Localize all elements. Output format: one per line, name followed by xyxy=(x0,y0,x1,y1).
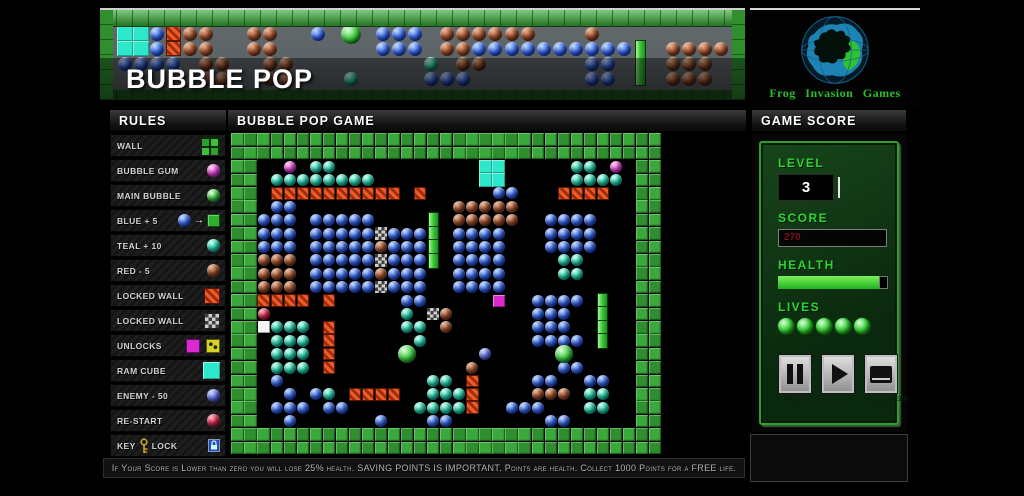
wall-tile xyxy=(649,348,661,361)
wall-tile xyxy=(349,442,361,455)
wall-tile xyxy=(375,133,387,146)
wall-tile xyxy=(649,133,661,146)
wall-tile xyxy=(649,388,661,401)
wall-tile xyxy=(257,442,269,455)
wall-tile xyxy=(362,133,374,146)
blue-bubble xyxy=(310,228,322,240)
blue-bubble xyxy=(414,295,426,307)
blue-bubble xyxy=(414,281,426,293)
red-bubble xyxy=(456,27,470,41)
locked-wall-tile xyxy=(257,294,269,307)
blue-bubble xyxy=(323,254,335,266)
red-bubble xyxy=(183,27,197,41)
blue-bubble xyxy=(479,268,491,280)
game-board[interactable] xyxy=(228,132,746,456)
teal-bubble xyxy=(349,174,361,186)
wall-tile xyxy=(518,428,530,441)
life-orb xyxy=(797,318,813,334)
blue-bubble xyxy=(414,228,426,240)
wall-tile xyxy=(323,133,335,146)
blue-bubble xyxy=(349,214,361,226)
blue-bubble xyxy=(414,268,426,280)
wall-tile xyxy=(427,133,439,146)
blue-bubble xyxy=(532,295,544,307)
wall-tile xyxy=(231,401,243,414)
locked-wall-tile xyxy=(388,187,400,200)
red-bubble xyxy=(183,42,197,56)
blue-bubble xyxy=(310,388,322,400)
blue-bubble xyxy=(532,335,544,347)
score-header: GAME SCORE xyxy=(752,110,906,132)
red-bubble xyxy=(247,27,261,41)
blue-bubble xyxy=(493,187,505,199)
blue-bubble xyxy=(362,268,374,280)
wall-tile xyxy=(649,401,661,414)
wall-tile xyxy=(244,375,256,388)
blue-bubble xyxy=(150,27,164,41)
blue-bubble xyxy=(532,375,544,387)
game-board-header: BUBBLE POP GAME xyxy=(228,110,746,132)
locked-wall-tile xyxy=(558,187,570,200)
wall-tile xyxy=(375,147,387,160)
wall-tile xyxy=(466,442,478,455)
blue-bubble xyxy=(150,42,164,56)
health-bar xyxy=(778,276,888,289)
rule-label: BLUE + 5 xyxy=(117,216,175,226)
locked-wall-tile xyxy=(584,187,596,200)
wall-tile xyxy=(231,147,243,160)
wall-tile xyxy=(649,361,661,374)
blue-bubble xyxy=(585,42,599,56)
blue-bubble xyxy=(271,228,283,240)
level-input[interactable]: 3 xyxy=(778,174,834,201)
red-bubble xyxy=(284,281,296,293)
wall-tile xyxy=(649,334,661,347)
wall-tile xyxy=(231,174,243,187)
wall-tile xyxy=(231,254,243,267)
locked-wall-tile xyxy=(323,294,335,307)
teal-bubble xyxy=(453,402,465,414)
red-bubble xyxy=(682,42,696,56)
wall-tile xyxy=(610,442,622,455)
red-bubble xyxy=(375,268,387,280)
red-bubble xyxy=(258,268,270,280)
red-bubble xyxy=(456,42,470,56)
wall-tile xyxy=(492,428,504,441)
wall-tile xyxy=(231,321,243,334)
wall-tile xyxy=(244,200,256,213)
teal-bubble xyxy=(297,348,309,360)
teal-bubble xyxy=(584,388,596,400)
enemy-bubble xyxy=(479,348,491,360)
red-bubble xyxy=(199,42,213,56)
wall-tile xyxy=(231,187,243,200)
button-face xyxy=(864,354,898,394)
wall-tile xyxy=(649,321,661,334)
wall-tile xyxy=(649,308,661,321)
wall-tile xyxy=(401,428,413,441)
wall-tile xyxy=(231,334,243,347)
blue-bubble xyxy=(545,214,557,226)
blue-bubble xyxy=(376,42,390,56)
wall-tile xyxy=(636,254,648,267)
wall-tile xyxy=(466,147,478,160)
blue-bubble xyxy=(545,375,557,387)
wall-tile xyxy=(584,428,596,441)
blue-bubble xyxy=(571,335,583,347)
blue-bubble xyxy=(537,42,551,56)
red-bubble xyxy=(472,27,486,41)
wall-tile xyxy=(597,147,609,160)
wall-tile xyxy=(479,442,491,455)
teal-bubble xyxy=(584,402,596,414)
wall-tile xyxy=(532,428,544,441)
red-bubble xyxy=(488,27,502,41)
locked-wall-tile xyxy=(166,26,181,40)
teal-bubble xyxy=(571,161,583,173)
teal-bubble xyxy=(427,375,439,387)
blue-bubble xyxy=(336,281,348,293)
red-bubble xyxy=(199,27,213,41)
blue-bubble xyxy=(310,268,322,280)
blue-bubble xyxy=(545,228,557,240)
ram-cube-tile xyxy=(133,41,149,56)
rule-label: LOCK xyxy=(152,441,205,451)
wall-tile xyxy=(231,267,243,280)
wall-tile xyxy=(623,442,635,455)
locked-wall-tile xyxy=(323,321,335,334)
locked-wall-tile xyxy=(362,388,374,401)
blue-bubble xyxy=(336,402,348,414)
blue-bubble xyxy=(349,281,361,293)
fullscreen-button[interactable]: FULLSCREEN xyxy=(864,354,898,403)
wall-tile xyxy=(414,147,426,160)
green-bar-segment xyxy=(429,213,438,227)
blue-bubble xyxy=(571,241,583,253)
red-bubble xyxy=(271,268,283,280)
wall-tile xyxy=(636,361,648,374)
rule-label: KEY xyxy=(117,441,136,451)
rule-item-key: KEYLOCK xyxy=(110,434,226,457)
button-label: PLAY xyxy=(821,397,855,403)
wall-tile xyxy=(649,267,661,280)
blue-bubble xyxy=(532,321,544,333)
wall-tile xyxy=(597,133,609,146)
steel-wall-tile xyxy=(427,308,439,321)
teal-bubble xyxy=(297,335,309,347)
orb-crimson-icon xyxy=(207,414,220,427)
blue-bubble xyxy=(414,254,426,266)
wall-tile xyxy=(284,442,296,455)
wall-tile xyxy=(440,133,452,146)
blue-bubble xyxy=(558,214,570,226)
wall-tile xyxy=(388,147,400,160)
wall-tile xyxy=(636,281,648,294)
blue-plus-icon xyxy=(207,214,220,227)
blue-bubble xyxy=(545,415,557,427)
blue-bubble xyxy=(284,402,296,414)
locked-wall-tile xyxy=(297,294,309,307)
wall-icon xyxy=(202,137,220,155)
teal-bubble xyxy=(440,375,452,387)
game-area: BUBBLE POP GAME xyxy=(228,110,746,456)
teal-bubble xyxy=(271,321,283,333)
wall-tile xyxy=(231,160,243,173)
teal-bubble xyxy=(310,161,322,173)
red-bubble xyxy=(505,27,519,41)
wall-tile xyxy=(649,187,661,200)
wall-tile xyxy=(636,227,648,240)
ram-cube-tile xyxy=(492,173,505,187)
wall-tile xyxy=(244,361,256,374)
blue-bubble xyxy=(553,42,567,56)
green-bar-segment xyxy=(429,240,438,254)
locked-wall-tile xyxy=(323,187,335,200)
wall-tile xyxy=(636,308,648,321)
blue-bubble xyxy=(584,228,596,240)
blue-bubble xyxy=(558,228,570,240)
button-label: FULLSCREEN xyxy=(864,397,898,403)
wall-tile xyxy=(532,133,544,146)
blue-bubble xyxy=(558,362,570,374)
blue-bubble xyxy=(323,268,335,280)
play-button[interactable]: PLAY xyxy=(821,354,855,403)
wall-tile xyxy=(649,214,661,227)
teal-bubble xyxy=(610,174,622,186)
arrow-right-icon: → xyxy=(194,214,204,227)
wall-tile xyxy=(636,321,648,334)
rules-list: WALLBUBBLE GUMMAIN BUBBLEBLUE + 5→TEAL +… xyxy=(110,134,226,457)
locked-wall-tile xyxy=(310,187,322,200)
wall-tile xyxy=(623,133,635,146)
key-icon xyxy=(139,438,149,454)
blue-bubble xyxy=(362,214,374,226)
play-icon xyxy=(832,364,848,384)
red-bubble xyxy=(263,27,277,41)
red-bubble xyxy=(453,201,465,213)
locked-wall-tile xyxy=(466,375,478,388)
lock-gray-icon xyxy=(204,313,220,329)
teal-bubble xyxy=(323,161,335,173)
blue-bubble xyxy=(466,281,478,293)
wall-tile xyxy=(636,388,648,401)
blue-bubble xyxy=(479,241,491,253)
wall-tile xyxy=(518,442,530,455)
wall-tile xyxy=(244,348,256,361)
life-orb xyxy=(778,318,794,334)
teal-bubble xyxy=(323,388,335,400)
wall-tile xyxy=(349,133,361,146)
blue-bubble xyxy=(453,254,465,266)
blue-bubble xyxy=(284,228,296,240)
teal-bubble xyxy=(597,388,609,400)
wall-tile xyxy=(636,401,648,414)
locked-wall-tile xyxy=(271,187,283,200)
blue-bubble xyxy=(453,241,465,253)
rule-item-blue-5: BLUE + 5→ xyxy=(110,209,226,232)
wall-tile xyxy=(231,388,243,401)
button-label: PAUSE xyxy=(778,397,812,403)
ram-cube-tile xyxy=(133,26,149,41)
teal-bubble xyxy=(401,321,413,333)
orb-teal-icon xyxy=(207,239,220,252)
blue-bubble xyxy=(617,42,631,56)
score-value: 270 xyxy=(778,229,887,247)
locked-wall-tile xyxy=(323,348,335,361)
wall-tile xyxy=(231,133,243,146)
rule-item-ram-cube: RAM CUBE xyxy=(110,359,226,382)
level-label: LEVEL xyxy=(778,156,897,170)
locked-wall-tile xyxy=(414,187,426,200)
teal-bubble xyxy=(284,348,296,360)
blue-bubble xyxy=(388,254,400,266)
blue-bubble xyxy=(401,281,413,293)
wall-tile xyxy=(636,348,648,361)
blue-bubble xyxy=(297,402,309,414)
wall-tile xyxy=(440,428,452,441)
blue-bubble xyxy=(323,214,335,226)
level-value: 3 xyxy=(802,179,810,196)
teal-bubble xyxy=(584,174,596,186)
blue-bubble xyxy=(414,241,426,253)
blue-bubble xyxy=(597,375,609,387)
wall-tile xyxy=(244,160,256,173)
teal-bubble xyxy=(440,402,452,414)
blue-bubble xyxy=(392,42,406,56)
wall-tile xyxy=(336,442,348,455)
rule-label: RED - 5 xyxy=(117,266,204,276)
wall-tile xyxy=(532,442,544,455)
wall-tile xyxy=(284,147,296,160)
wall-tile xyxy=(453,428,465,441)
wall-tile xyxy=(297,133,309,146)
wall-tile xyxy=(349,428,361,441)
teal-bubble xyxy=(297,174,309,186)
wall-tile xyxy=(231,200,243,213)
score-label: SCORE xyxy=(778,211,897,225)
locked-wall-tile xyxy=(271,294,283,307)
blue-bubble xyxy=(310,241,322,253)
blue-bubble xyxy=(258,228,270,240)
wall-tile xyxy=(257,428,269,441)
wall-tile xyxy=(558,147,570,160)
teal-bubble xyxy=(401,308,413,320)
pause-button[interactable]: PAUSE xyxy=(778,354,812,403)
red-bubble xyxy=(714,42,728,56)
locked-wall-tile xyxy=(375,187,387,200)
wall-tile xyxy=(479,133,491,146)
wall-tile xyxy=(414,428,426,441)
wall-tile xyxy=(244,442,256,455)
locked-wall-tile xyxy=(466,388,478,401)
wall-tile xyxy=(349,147,361,160)
wall-tile xyxy=(571,147,583,160)
wall-tile xyxy=(231,227,243,240)
blue-bubble xyxy=(323,281,335,293)
wall-tile xyxy=(244,241,256,254)
blue-bubble xyxy=(479,254,491,266)
blue-bubble xyxy=(466,228,478,240)
teal-bubble xyxy=(323,174,335,186)
wall-tile xyxy=(649,442,661,455)
wall-tile xyxy=(636,294,648,307)
blue-bubble xyxy=(440,415,452,427)
bubble-gum-bubble xyxy=(284,161,296,173)
locked-wall-tile xyxy=(349,187,361,200)
wall-tile xyxy=(284,428,296,441)
wall-tile xyxy=(492,133,504,146)
wall-tile xyxy=(323,428,335,441)
locked-wall-tile xyxy=(297,187,309,200)
blue-bubble xyxy=(271,375,283,387)
red-bubble xyxy=(506,214,518,226)
rule-item-bubble-gum: BUBBLE GUM xyxy=(110,159,226,182)
health-label: HEALTH xyxy=(778,258,897,272)
wall-tile xyxy=(466,428,478,441)
blue-bubble xyxy=(558,308,570,320)
wall-tile xyxy=(479,147,491,160)
wall-tile xyxy=(244,294,256,307)
rule-item-re-start: RE-START xyxy=(110,409,226,432)
wall-tile xyxy=(649,147,661,160)
wall-tile xyxy=(231,281,243,294)
wall-tile xyxy=(231,375,243,388)
button-face xyxy=(778,354,812,394)
unlocks-icon xyxy=(206,339,220,353)
blue-bubble xyxy=(408,27,422,41)
blue-bubble xyxy=(519,402,531,414)
blue-bubble xyxy=(532,308,544,320)
red-bubble xyxy=(284,268,296,280)
locked-wall-tile xyxy=(375,388,387,401)
blue-bubble xyxy=(388,281,400,293)
banner-top-tiles xyxy=(100,10,745,27)
wall-tile xyxy=(244,321,256,334)
wall-tile xyxy=(297,428,309,441)
green-bar-segment xyxy=(429,227,438,241)
steel-wall-tile xyxy=(375,254,387,267)
health-empty xyxy=(879,276,888,289)
blue-bubble xyxy=(545,321,557,333)
orb-enemy-icon xyxy=(207,389,220,402)
wall-tile xyxy=(545,428,557,441)
red-bubble xyxy=(375,241,387,253)
bottom-right-box xyxy=(750,434,908,482)
wall-tile xyxy=(427,442,439,455)
blue-bubble xyxy=(336,254,348,266)
unlocks-icon xyxy=(186,339,200,353)
lives-label: LIVES xyxy=(778,300,897,314)
wall-tile xyxy=(244,334,256,347)
blue-bubble xyxy=(392,27,406,41)
life-orb xyxy=(835,318,851,334)
red-bubble xyxy=(466,201,478,213)
blue-bubble xyxy=(336,228,348,240)
blue-bubble xyxy=(310,281,322,293)
wall-tile xyxy=(231,361,243,374)
red-bubble xyxy=(440,42,454,56)
teal-bubble xyxy=(336,174,348,186)
red-bubble xyxy=(521,27,535,41)
red-bubble xyxy=(493,214,505,226)
blue-bubble xyxy=(401,254,413,266)
frog-globe-logo xyxy=(798,13,872,87)
teal-bubble xyxy=(558,254,570,266)
wall-tile xyxy=(244,267,256,280)
blue-bubble xyxy=(466,268,478,280)
blue-bubble xyxy=(472,42,486,56)
teal-bubble xyxy=(362,174,374,186)
